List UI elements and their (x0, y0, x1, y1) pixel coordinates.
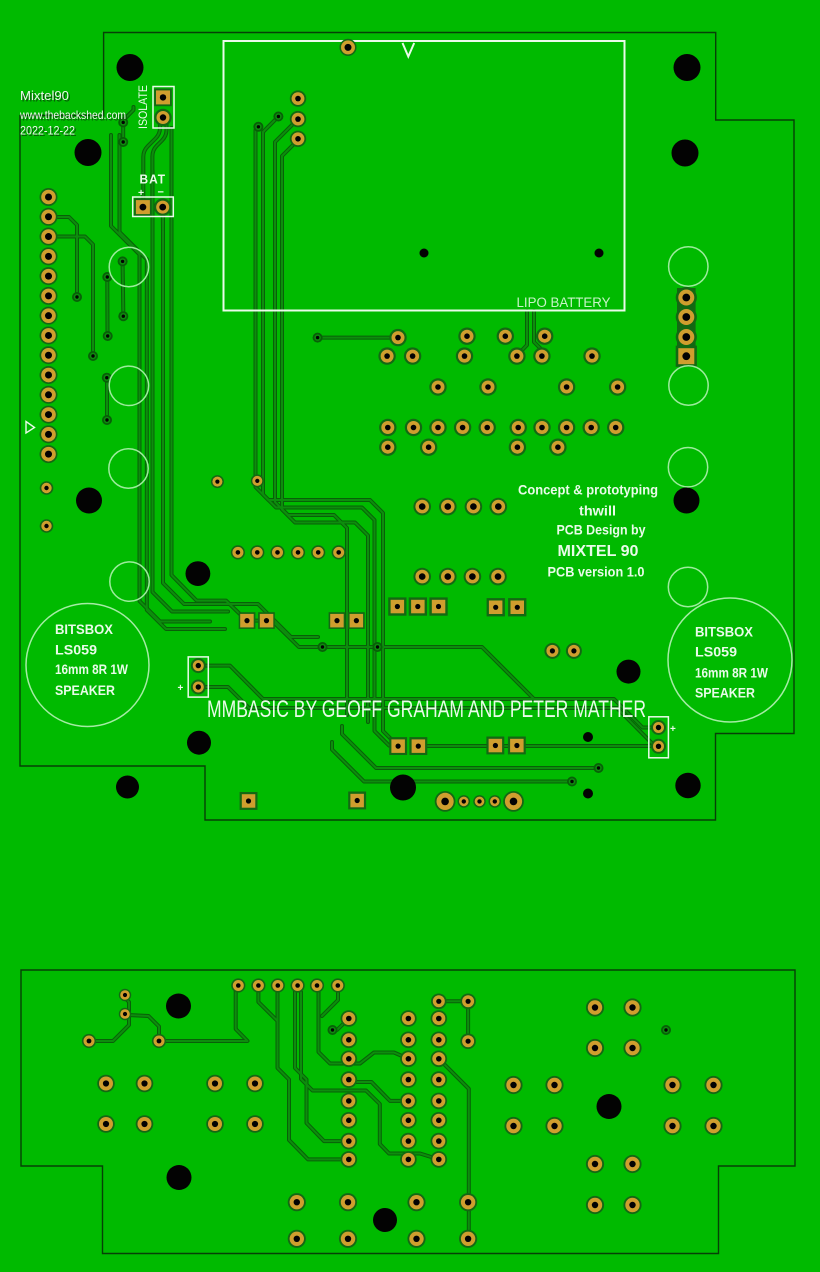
svg-text:16mm 8R 1W: 16mm 8R 1W (695, 665, 769, 681)
svg-text:BITSBOX: BITSBOX (695, 624, 754, 640)
svg-text:16mm 8R 1W: 16mm 8R 1W (55, 661, 129, 677)
svg-text:PCB Design by: PCB Design by (557, 522, 646, 538)
svg-text:+: + (138, 187, 144, 199)
svg-text:www.thebackshed.com: www.thebackshed.com (19, 108, 126, 122)
svg-text:+: + (670, 724, 676, 735)
svg-text:LIPO BATTERY: LIPO BATTERY (517, 295, 611, 310)
svg-text:ISOLATE: ISOLATE (138, 85, 150, 129)
svg-text:thwill: thwill (579, 503, 616, 519)
svg-text:MMBASIC BY GEOFF GRAHAM AND PE: MMBASIC BY GEOFF GRAHAM AND PETER MATHER (207, 696, 646, 723)
svg-text:SPEAKER: SPEAKER (55, 682, 115, 698)
svg-text:MIXTEL 90: MIXTEL 90 (558, 543, 639, 560)
svg-text:2022-12-22: 2022-12-22 (20, 124, 75, 138)
svg-text:LS059: LS059 (55, 642, 97, 658)
svg-text:+: + (178, 683, 184, 694)
svg-text:Concept & prototyping: Concept & prototyping (518, 482, 658, 498)
svg-text:BAT: BAT (140, 173, 167, 187)
svg-text:SPEAKER: SPEAKER (695, 685, 755, 701)
svg-text:Mixtel90: Mixtel90 (20, 89, 69, 103)
svg-text:PCB version 1.0: PCB version 1.0 (548, 564, 645, 580)
svg-text:−: − (158, 186, 164, 198)
svg-text:LS059: LS059 (695, 644, 737, 660)
svg-text:BITSBOX: BITSBOX (55, 621, 114, 637)
